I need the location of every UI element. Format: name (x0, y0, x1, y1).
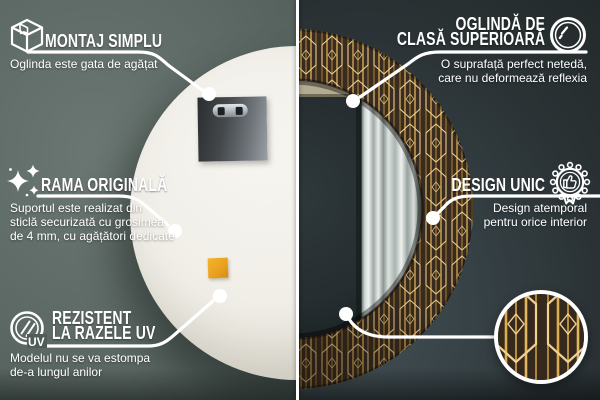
desc-line: care nu deformează reflexia (438, 71, 587, 85)
montaj-title: MONTAJ SIMPLU (45, 34, 162, 49)
oglinda-title: OGLINDĂ DE CLASĂ SUPERIOARĂ (397, 17, 545, 47)
bracket-slot (236, 106, 243, 114)
rama-desc: Suportul este realizat din sticlă securi… (10, 201, 175, 243)
desc-line: Suportul este realizat din (10, 201, 175, 215)
mirror-shine-icon (547, 14, 589, 56)
oglinda-desc: O suprafață perfect netedă, care nu defo… (438, 57, 587, 85)
uv-icon-label: UV (28, 335, 45, 349)
design-title: DESIGN UNIC (451, 178, 545, 193)
package-box-icon (6, 15, 48, 57)
desc-line: Design atemporal (484, 201, 587, 215)
split-divider-line (296, 0, 299, 400)
desc-line: Modelul nu se va estompa (10, 351, 150, 365)
desc-line: de-a lungul anilor (10, 365, 150, 379)
uv-protection-icon: UV (8, 309, 52, 351)
pattern-zoom-detail (498, 294, 584, 380)
desc-line: O suprafață perfect netedă, (438, 57, 587, 71)
montaj-desc: Oglinda este gata de agățat (10, 57, 157, 71)
title-line: LA RAZELE UV (52, 326, 156, 341)
product-infographic: UV MONTAJ SI (0, 0, 600, 400)
uv-title: REZISTENT LA RAZELE UV (52, 311, 156, 341)
design-desc: Design atemporal pentru orice interior (484, 201, 587, 229)
bracket-slot (218, 107, 225, 115)
sparkles-icon (5, 163, 43, 199)
desc-line: pentru orice interior (484, 215, 587, 229)
hanger-bracket (213, 104, 248, 118)
hanger-plate (197, 96, 267, 161)
pattern-zoom-circle (494, 290, 588, 384)
uv-desc: Modelul nu se va estompa de-a lungul ani… (10, 351, 150, 379)
desc-line: sticlă securizată cu grosimea (10, 215, 175, 229)
desc-line: de 4 mm, cu agățători dedicate (10, 229, 175, 243)
rama-title: RAMA ORIGINALĂ (41, 178, 167, 193)
title-line: CLASĂ SUPERIOARĂ (397, 32, 545, 47)
orange-sticker (208, 258, 229, 279)
